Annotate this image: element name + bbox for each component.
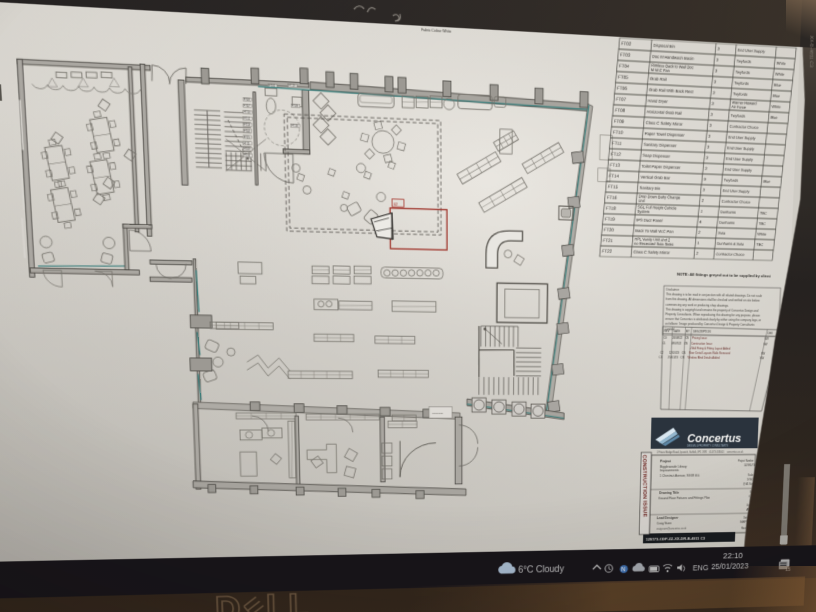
svg-text:09/07/22: 09/07/22 — [671, 342, 681, 345]
svg-text:Class C Safety Mirror: Class C Safety Mirror — [633, 250, 670, 256]
svg-text:C0: C0 — [663, 337, 667, 340]
svg-text:CN: CN — [685, 337, 689, 340]
svg-text:FT03: FT03 — [620, 53, 631, 59]
svg-text:Drawing Title: Drawing Title — [659, 491, 679, 495]
svg-text:CN: CN — [680, 356, 684, 359]
svg-text:CONSTRUCTION ISSUE: CONSTRUCTION ISSUE — [641, 455, 647, 518]
svg-text:White: White — [775, 72, 785, 77]
svg-text:XX-B-4911 C3: XX-B-4911 C3 — [808, 36, 813, 68]
svg-text:Back To Wall W.C Pan: Back To Wall W.C Pan — [635, 229, 674, 235]
svg-text:FT16: FT16 — [292, 124, 299, 128]
svg-text:FT16: FT16 — [607, 195, 618, 201]
svg-text:FT12: FT12 — [611, 152, 622, 158]
svg-text:TBC: TBC — [756, 242, 764, 246]
svg-text:+Wall Fixing & Fitting Layout: +Wall Fixing & Fitting Layout Added — [690, 347, 731, 351]
svg-text:FT19: FT19 — [605, 217, 616, 222]
svg-text:Sanitary Bin: Sanitary Bin — [639, 186, 661, 192]
svg-text:WELCOME: WELCOME — [432, 412, 443, 415]
svg-text:Disclaimer: Disclaimer — [666, 288, 680, 292]
svg-text:CN: CN — [682, 351, 686, 354]
svg-text:Dunhams & Sola: Dunhams & Sola — [717, 241, 745, 246]
svg-text:CN: CN — [684, 342, 688, 345]
svg-text:FT14: FT14 — [609, 174, 620, 180]
svg-text:C3: C3 — [659, 356, 663, 359]
svg-text:Project: Project — [660, 459, 671, 463]
svg-text:TBC: TBC — [758, 221, 766, 225]
svg-text:FT13: FT13 — [244, 123, 251, 127]
svg-text:Craig Nunn: Craig Nunn — [657, 522, 672, 525]
svg-text:1 Chestnut Avenue, SG18 0LL: 1 Chestnut Avenue, SG18 0LL — [660, 474, 701, 478]
svg-text:Blue: Blue — [763, 179, 771, 184]
svg-text:FT08: FT08 — [244, 98, 251, 102]
svg-text:IPS Duct Panel: IPS Duct Panel — [636, 218, 663, 224]
svg-text:DATE: DATE — [673, 330, 680, 333]
svg-text:Air Force: Air Force — [731, 105, 746, 110]
svg-text:FT20: FT20 — [604, 228, 615, 233]
svg-text:FT12: FT12 — [244, 117, 251, 121]
svg-text:Twyfords: Twyfords — [730, 113, 746, 118]
svg-text:C1: C1 — [662, 342, 666, 345]
svg-text:FT06: FT06 — [617, 86, 628, 92]
svg-text:FT08: FT08 — [615, 108, 626, 114]
svg-text:Improvements: Improvements — [660, 469, 679, 472]
svg-text:Twyfords: Twyfords — [724, 178, 739, 183]
svg-text:DESCRIPTION: DESCRIPTION — [693, 330, 711, 334]
svg-text:FT07: FT07 — [244, 104, 251, 108]
svg-text:craig.nunn@concertus.co.uk: craig.nunn@concertus.co.uk — [656, 527, 686, 531]
svg-text:Hand Dryer: Hand Dryer — [648, 99, 669, 105]
svg-text:Construction Issue: Construction Issue — [691, 342, 712, 346]
svg-text:FT18: FT18 — [606, 206, 617, 211]
svg-text:FT19: FT19 — [289, 84, 296, 88]
svg-text:FT15: FT15 — [244, 135, 251, 139]
svg-text:FT11: FT11 — [244, 142, 251, 146]
svg-text:Soap Dispenser: Soap Dispenser — [642, 153, 670, 159]
svg-text:Lead Designer: Lead Designer — [657, 516, 679, 520]
svg-text:FT04: FT04 — [619, 64, 630, 70]
svg-text:Ground Floor Fixtures and Fitt: Ground Floor Fixtures and Fittings Plan — [658, 497, 710, 501]
svg-text:Sola: Sola — [718, 231, 726, 235]
svg-text:FT15: FT15 — [608, 185, 619, 191]
svg-text:Twyfords: Twyfords — [736, 59, 752, 64]
svg-text:02: 02 — [393, 202, 398, 207]
svg-text:22:10: 22:10 — [723, 552, 743, 562]
svg-text:FT09: FT09 — [614, 119, 625, 125]
svg-text:C2: C2 — [660, 351, 664, 354]
svg-text:FT11: FT11 — [612, 141, 622, 147]
svg-text:FT16: FT16 — [244, 154, 251, 158]
svg-text:FT07: FT07 — [616, 97, 627, 103]
svg-text:System: System — [637, 209, 650, 214]
svg-text:Window Blind Details Added: Window Blind Details Added — [688, 356, 720, 360]
svg-text:Unit: Unit — [638, 198, 646, 203]
svg-text:Blue: Blue — [774, 83, 782, 88]
svg-text:White: White — [757, 232, 767, 236]
svg-text:Twyfords: Twyfords — [733, 92, 749, 97]
svg-text:25/01/2023: 25/01/2023 — [711, 562, 749, 571]
svg-text:FT09: FT09 — [292, 104, 299, 108]
svg-text:12/01/23: 12/01/23 — [669, 351, 679, 354]
svg-text:Dunhams: Dunhams — [719, 220, 735, 225]
svg-text:Concertus: Concertus — [687, 432, 742, 445]
svg-text:White: White — [776, 61, 786, 66]
svg-text:End User Supply: End User Supply — [722, 189, 750, 194]
svg-text:Project Number: Project Number — [738, 459, 754, 462]
svg-text:FT02: FT02 — [621, 41, 632, 47]
svg-text:DESIGN & PROPERTY CONSULTANTS: DESIGN & PROPERTY CONSULTANTS — [687, 445, 728, 448]
svg-text:Riser Detail Layouts Walls Rem: Riser Detail Layouts Walls Removed — [689, 352, 731, 356]
svg-text:Contractor Choice: Contractor Choice — [716, 252, 746, 257]
svg-text:FT10: FT10 — [244, 111, 251, 115]
svg-text:FT10: FT10 — [613, 130, 624, 136]
svg-text:Grab Rail: Grab Rail — [650, 76, 667, 82]
svg-text:15: 15 — [785, 567, 791, 572]
svg-text:White: White — [771, 104, 781, 109]
svg-text:129173: 129173 — [744, 463, 756, 467]
svg-text:FT21: FT21 — [603, 238, 614, 243]
svg-text:Twyfords: Twyfords — [734, 81, 750, 86]
svg-text:ENG: ENG — [693, 564, 709, 573]
svg-text:REV: REV — [664, 330, 670, 333]
svg-text:FT02: FT02 — [244, 129, 251, 133]
svg-text:FT22: FT22 — [602, 249, 612, 254]
svg-text:26/08/22: 26/08/22 — [672, 337, 682, 340]
svg-text:Blue: Blue — [770, 115, 778, 120]
svg-text:25/01/23: 25/01/23 — [668, 356, 678, 359]
svg-text:CHK: CHK — [767, 332, 773, 335]
svg-text:Scale: Scale — [748, 474, 754, 477]
svg-text:FT05: FT05 — [618, 75, 629, 81]
svg-text:Biggleswade Library: Biggleswade Library — [660, 465, 687, 468]
svg-text:TBC: TBC — [760, 211, 768, 215]
svg-text:FT13: FT13 — [610, 163, 621, 169]
svg-text:N: N — [621, 566, 625, 573]
svg-text:Vertical Grab Bar: Vertical Grab Bar — [640, 175, 670, 181]
svg-text:Dunhams: Dunhams — [720, 210, 736, 215]
svg-text:Blue: Blue — [773, 94, 781, 99]
svg-text:Pricing Issue: Pricing Issue — [692, 337, 707, 340]
svg-text:FT09: FT09 — [244, 148, 251, 152]
svg-text:6°C Cloudy: 6°C Cloudy — [518, 565, 564, 576]
svg-text:Twyfords: Twyfords — [735, 70, 751, 75]
svg-text:2 Friars Bridge Road, Ipswich,: 2 Friars Bridge Road, Ipswich, Suffolk, … — [657, 451, 744, 455]
